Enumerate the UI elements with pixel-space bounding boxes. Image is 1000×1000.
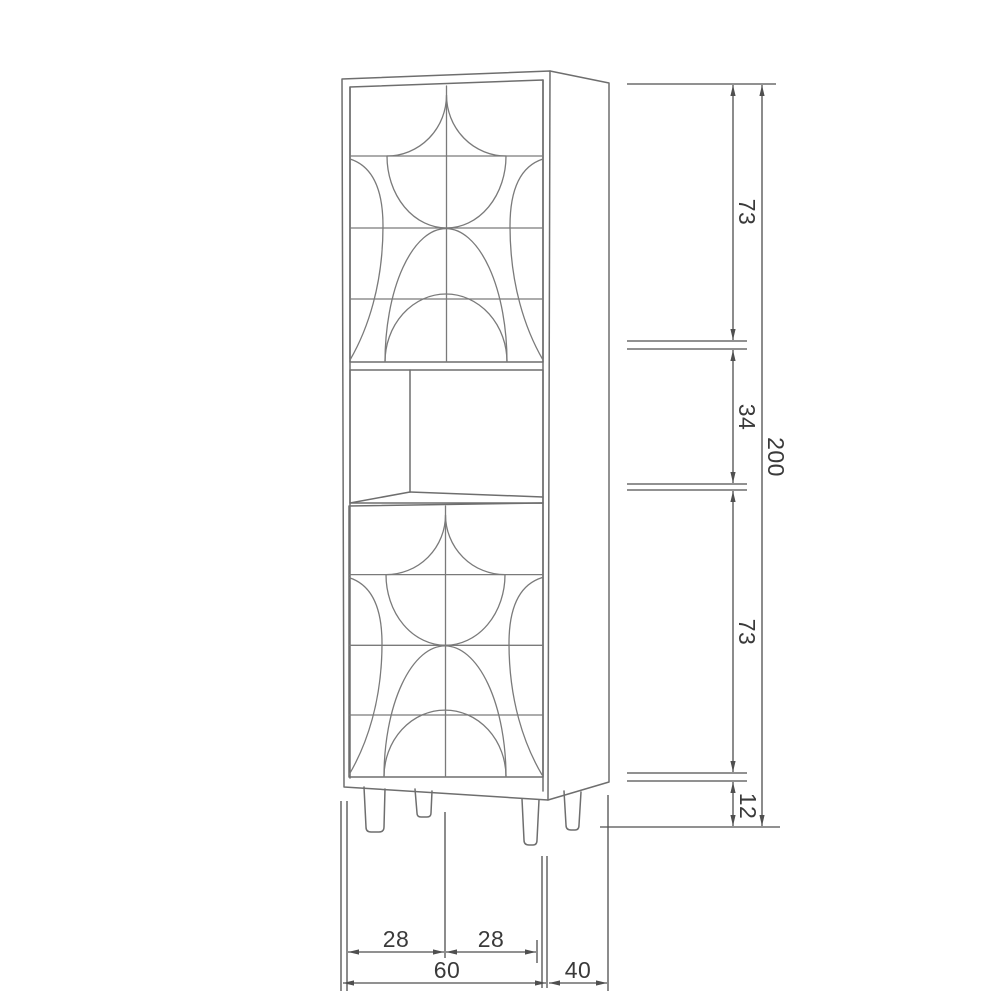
dimension-lines (341, 84, 780, 991)
dim-label-legs: 12 (735, 793, 761, 820)
leg-front-right (522, 799, 539, 845)
door-decorative-pattern (349, 86, 543, 777)
bottom-door-pattern (349, 506, 542, 777)
leg-rear-left (415, 789, 432, 817)
leg-rear-right (564, 791, 581, 830)
cabinet-body (342, 71, 609, 845)
product-dimension-diagram: 73 34 200 73 12 28 28 60 40 (0, 0, 1000, 1000)
dim-label-top-section: 73 (734, 199, 760, 226)
dimension-labels: 73 34 200 73 12 28 28 60 40 (383, 199, 789, 983)
cabinet-technical-drawing: 73 34 200 73 12 28 28 60 40 (0, 0, 1000, 1000)
dim-label-middle-section: 34 (734, 404, 760, 431)
dim-label-right-half-width: 28 (478, 926, 505, 952)
leg-front-left (364, 787, 385, 832)
dim-label-total-width: 60 (434, 957, 461, 983)
shelf-floor-back-edge (410, 492, 543, 497)
dim-label-depth: 40 (565, 957, 592, 983)
dim-label-total-height: 200 (763, 437, 789, 477)
dim-label-bottom-section: 73 (734, 619, 760, 646)
side-face (548, 71, 609, 800)
shelf-opening-border (350, 370, 543, 503)
shelf-floor-front-edge (350, 492, 410, 503)
dim-label-left-half-width: 28 (383, 926, 410, 952)
top-door-pattern (350, 86, 543, 362)
